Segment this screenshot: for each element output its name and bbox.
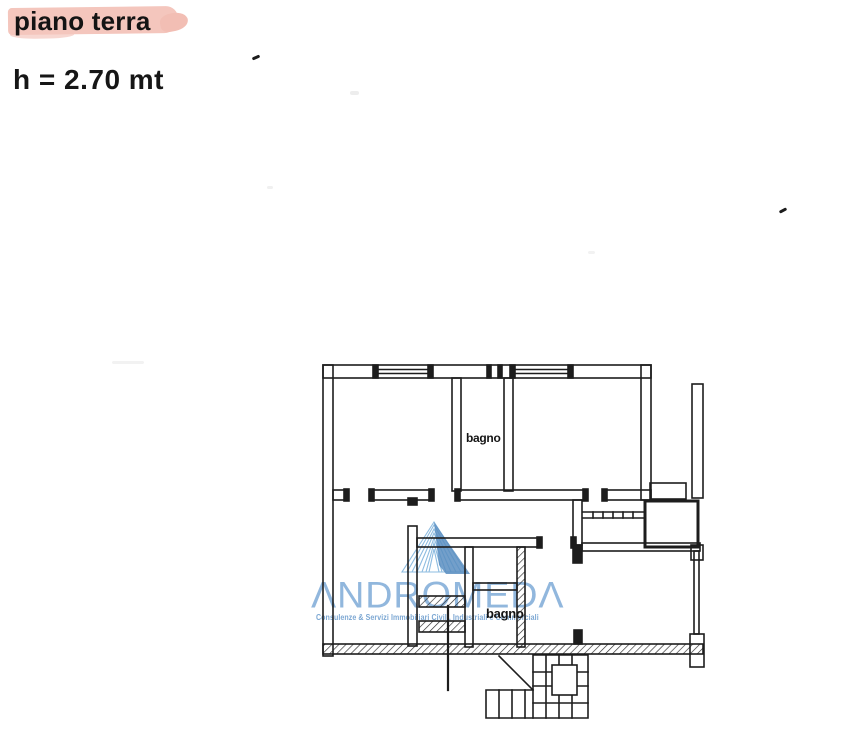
scanned-page: piano terra h = 2.70 mt ΛNDROMEDΛ Consul… (0, 0, 859, 732)
room-label-bagno-bottom: bagno (486, 606, 524, 621)
floor-plan-drawing: bagno bagno (0, 0, 859, 732)
room-label-bagno-top: bagno (466, 431, 501, 445)
walls (323, 365, 704, 718)
